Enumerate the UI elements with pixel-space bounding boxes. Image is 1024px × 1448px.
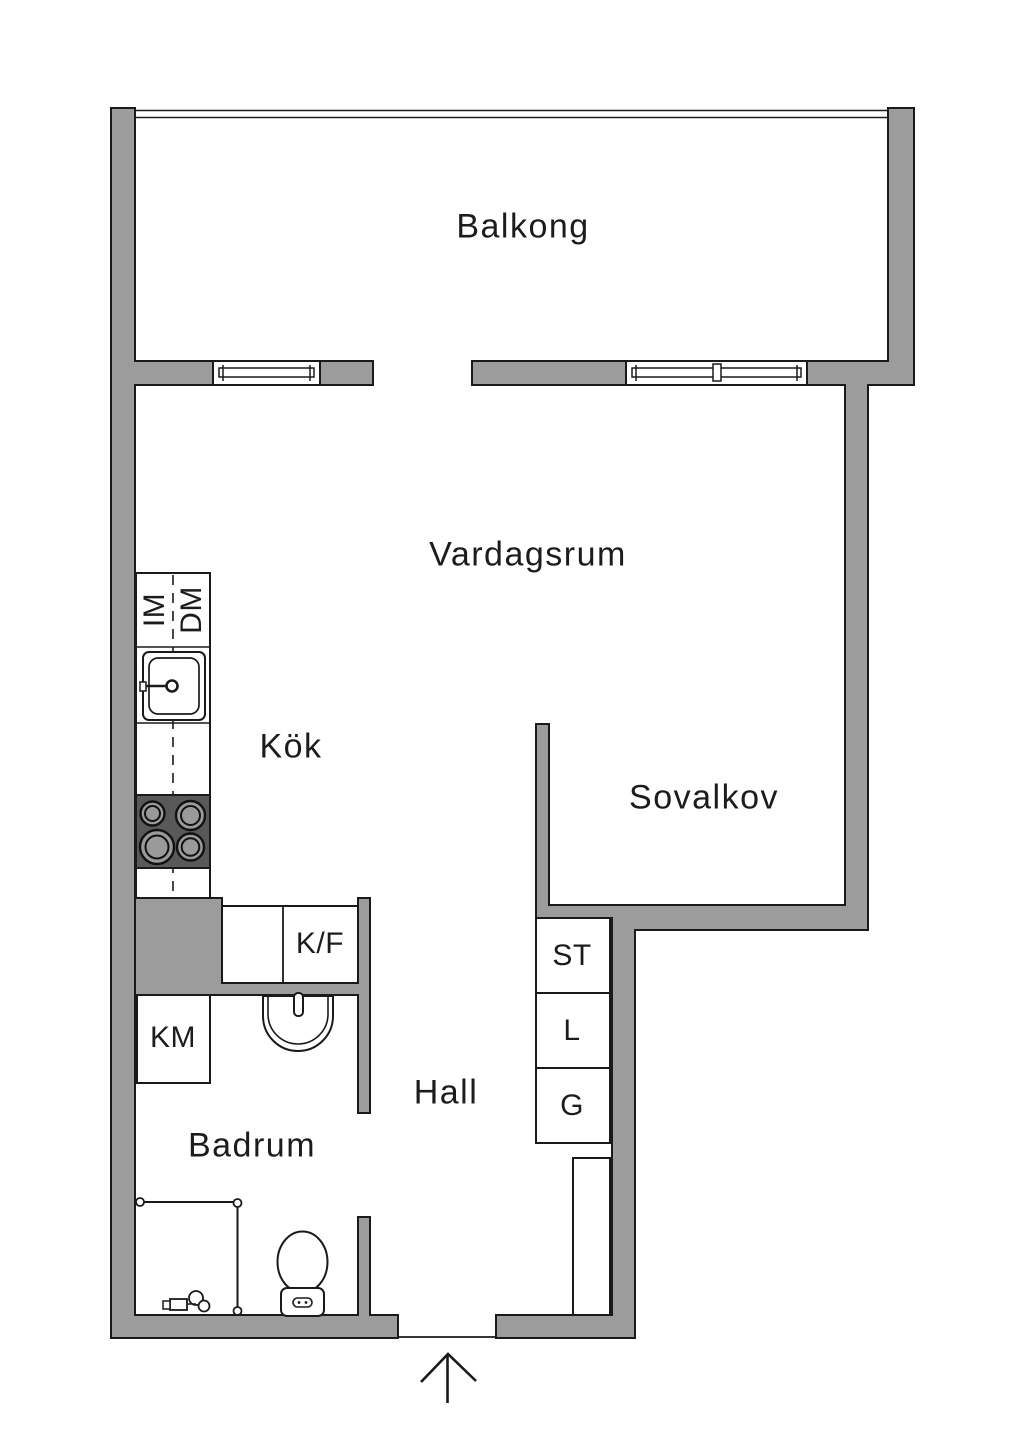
toilet-icon: [278, 1232, 328, 1317]
shower-mixer-icon: [163, 1291, 210, 1312]
wall-pier-between-window-and-door: [320, 361, 373, 385]
room-label-vardagsrum: Vardagsrum: [429, 536, 627, 575]
wall-right-complex: [496, 108, 914, 1338]
label-closet-st: ST: [552, 939, 591, 973]
label-washing-machine: KM: [150, 1021, 196, 1055]
label-appliance-dm: DM: [175, 586, 209, 634]
kitchen-sink-icon: [140, 652, 205, 720]
room-label-kok: Kök: [259, 728, 322, 767]
floor-plan: Balkong Vardagsrum Kök Sovalkov Hall Bad…: [0, 0, 1024, 1448]
balcony-window-right: [626, 361, 807, 385]
room-label-badrum: Badrum: [188, 1127, 316, 1166]
label-closet-g: G: [560, 1089, 584, 1123]
entry-door-leaf: [573, 1158, 610, 1315]
washbasin-icon: [263, 993, 333, 1051]
room-label-hall: Hall: [414, 1074, 479, 1113]
wall-pier-between-door-and-window: [472, 361, 626, 385]
label-appliance-im: IM: [138, 593, 172, 627]
label-fridge-freezer: K/F: [296, 927, 344, 961]
label-closet-l: L: [563, 1014, 580, 1048]
balcony-railing: [135, 111, 888, 118]
room-label-balkong: Balkong: [456, 208, 589, 247]
entrance-arrow: [421, 1354, 476, 1403]
balcony-window-left: [213, 361, 320, 385]
room-label-sovalkov: Sovalkov: [629, 779, 779, 818]
stove-icon: [136, 795, 210, 868]
